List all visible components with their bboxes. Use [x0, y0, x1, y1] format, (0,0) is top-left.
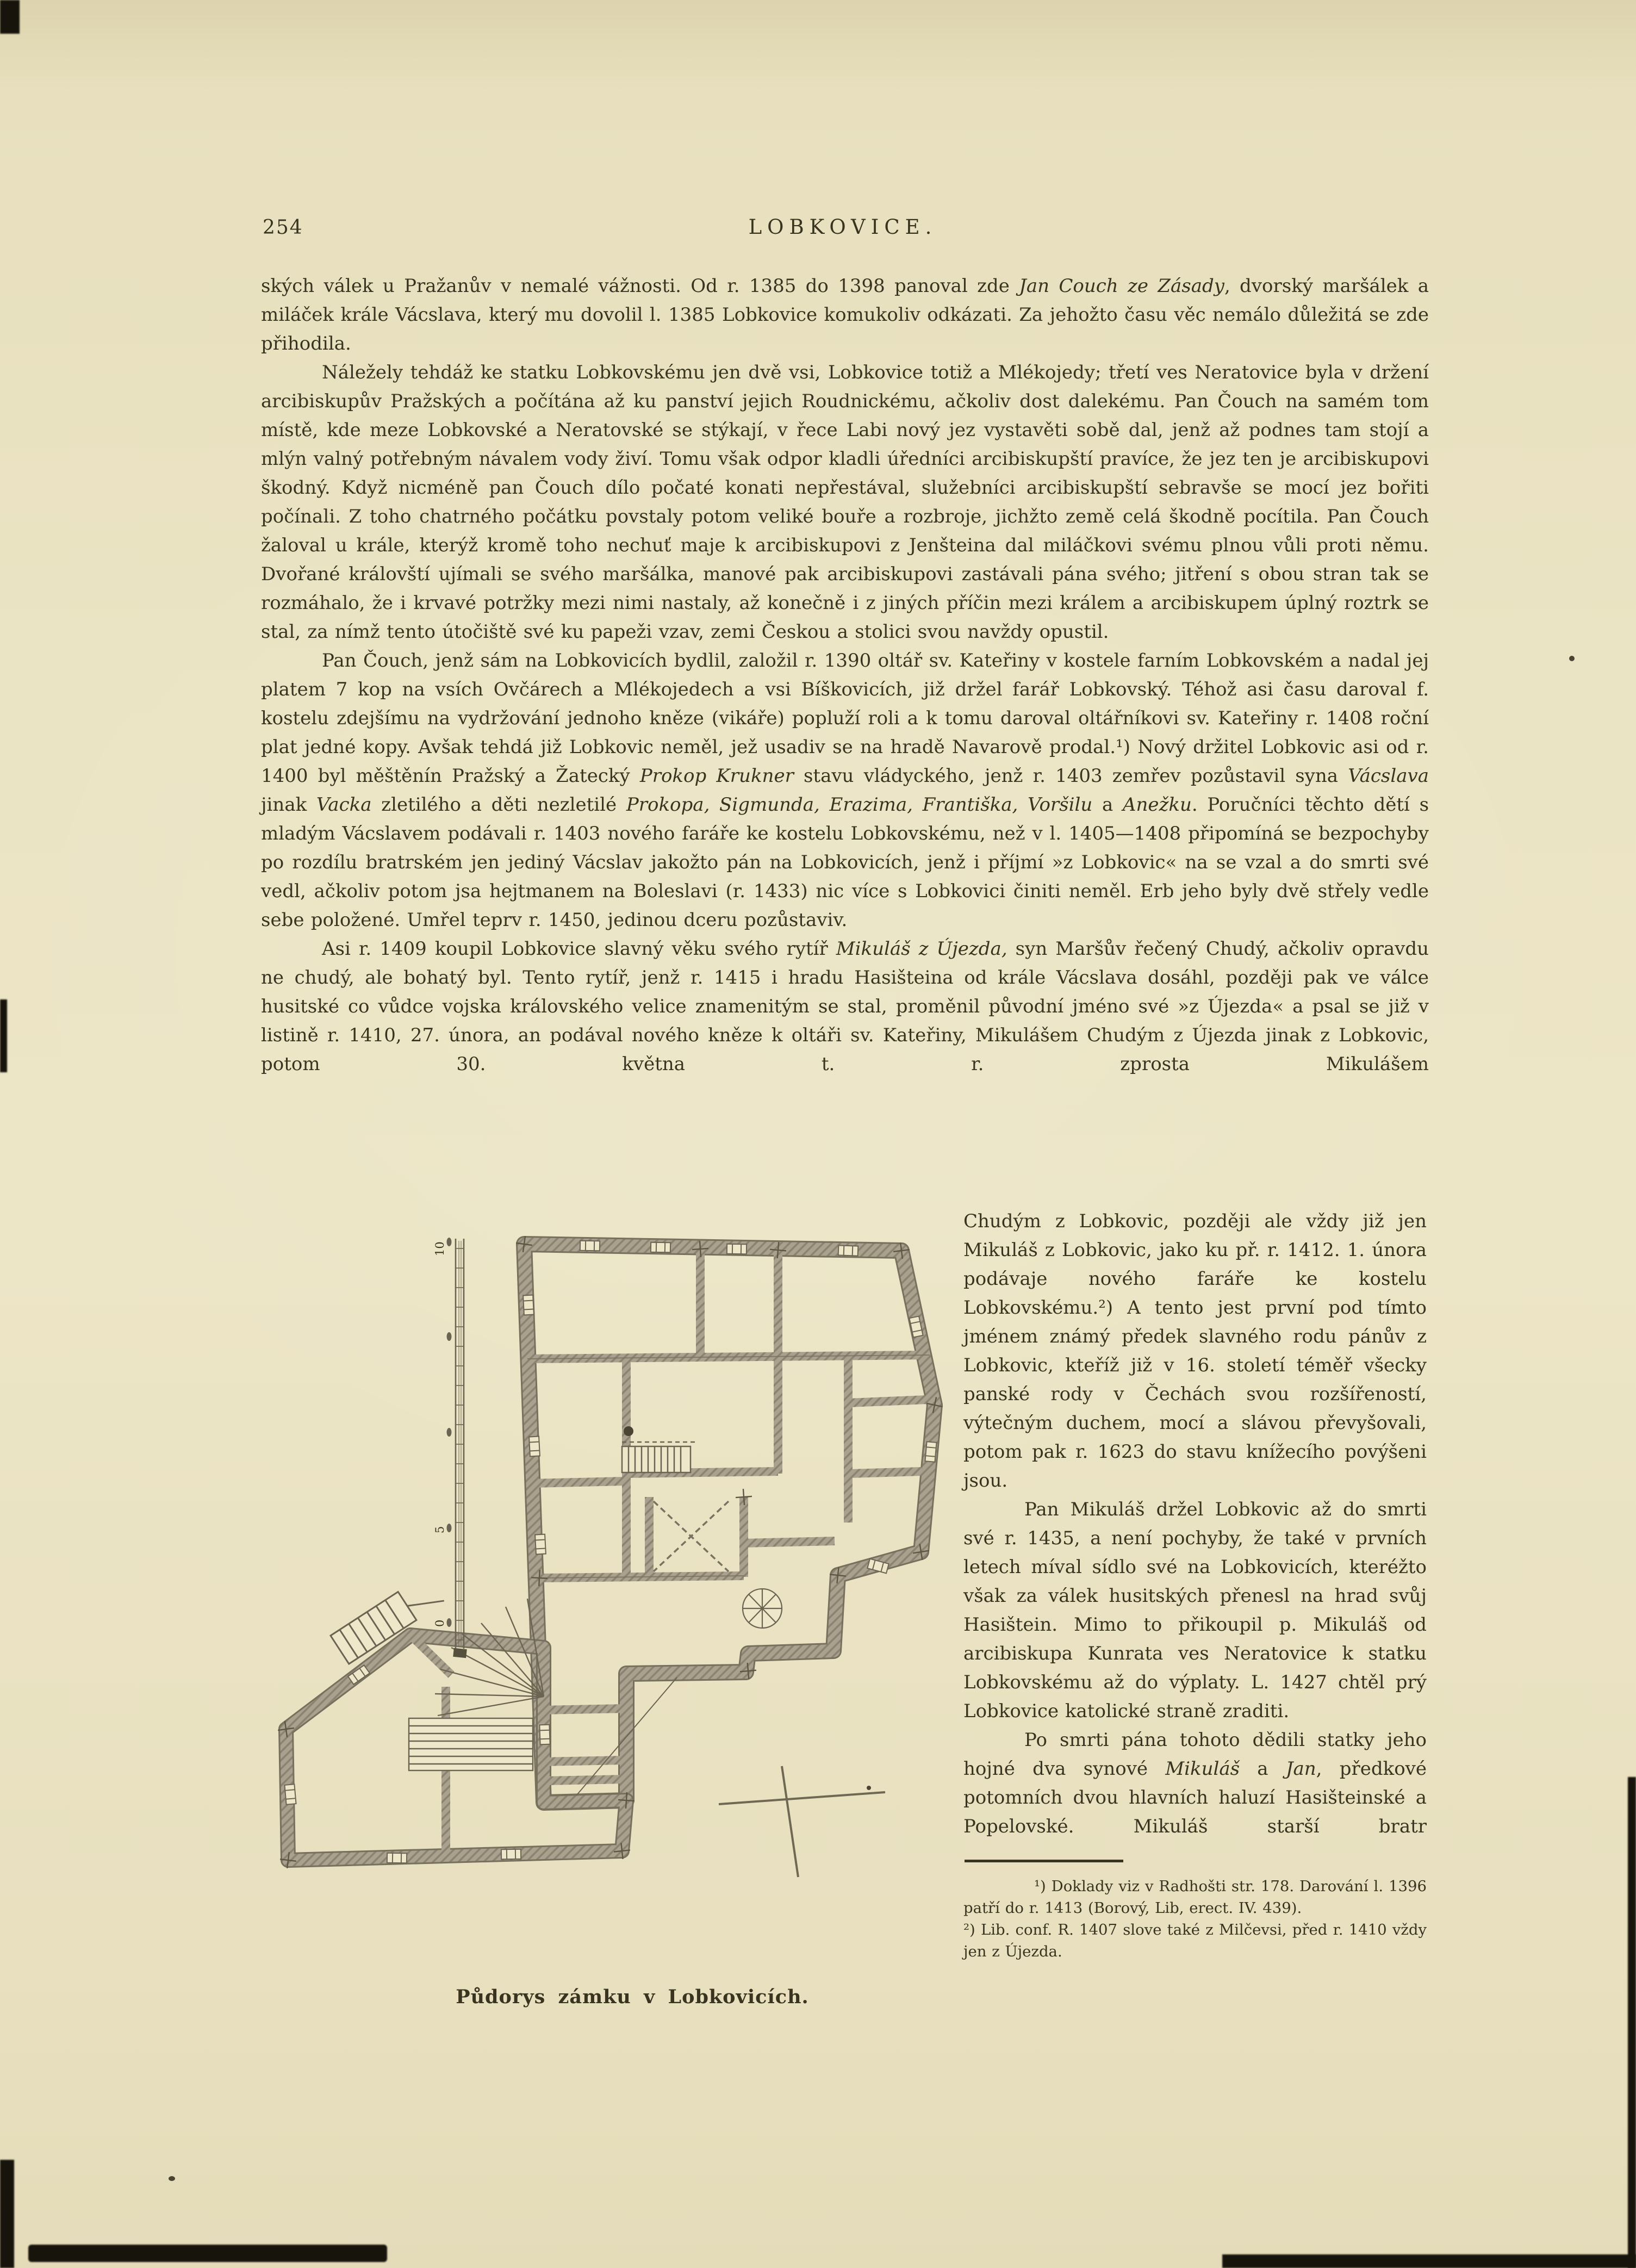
castle-floor-plan: 10 5 0	[272, 1218, 993, 1958]
footnotes-block: ¹) Doklady viz v Radhošti str. 178. Daro…	[963, 1875, 1427, 1962]
paragraph: Chudým z Lobkovic, později ale vždy již …	[963, 1207, 1427, 1495]
scan-artifact-bottom-right-bar	[1222, 2254, 1636, 2268]
paragraph: Pan Čouch, jenž sám na Lobkovicích bydli…	[261, 647, 1429, 935]
paragraph: ských válek u Pražanův v nemalé vážnosti…	[261, 272, 1429, 358]
hall-staircase	[622, 1442, 697, 1472]
floor-plan-figure: 10 5 0	[272, 1218, 993, 1958]
scan-artifact-top-left	[0, 0, 20, 34]
ink-speck	[867, 1786, 871, 1790]
spiral-stair	[743, 1589, 782, 1628]
courtyard-x	[654, 1501, 729, 1571]
column-paragraphs: Chudým z Lobkovic, později ale vždy již …	[963, 1207, 1427, 1841]
paragraph: Po smrti pána tohoto dědili statky jeho …	[963, 1726, 1427, 1841]
figure-caption: Půdorys zámku v Lobkovicích.	[272, 1986, 993, 2008]
ink-speck	[169, 2176, 175, 2181]
page-title: LOBKOVICE.	[749, 215, 937, 239]
upper-block-walls	[524, 1244, 935, 1803]
paragraph: Náležely tehdáž ke statku Lobkovskému je…	[261, 358, 1429, 647]
book-page-scan: 254 LOBKOVICE. ských válek u Pražanův v …	[0, 0, 1636, 2268]
scan-artifact-right-edge	[1628, 1777, 1636, 2268]
scan-artifact-bottom-left-corner	[0, 2160, 14, 2268]
scale-label-5: 5	[433, 1526, 446, 1533]
scale-label-0: 0	[433, 1620, 446, 1627]
paragraph: Asi r. 1409 koupil Lobkovice slavný věku…	[261, 935, 1429, 1079]
fan-staircase	[435, 1599, 544, 1716]
ink-speck	[1569, 656, 1575, 661]
survey-cross	[719, 1766, 885, 1877]
scale-bar: 10 5 0	[433, 1238, 467, 1658]
scale-label-10: 10	[433, 1241, 446, 1256]
footnote-rule	[965, 1860, 1123, 1862]
scan-artifact-bottom-bar	[28, 2245, 387, 2262]
door-mark	[624, 1426, 633, 1436]
paragraph: Pan Mikuláš držel Lobkovic až do smrti s…	[963, 1495, 1427, 1726]
page-number: 254	[263, 216, 303, 239]
footnote: ¹) Doklady viz v Radhošti str. 178. Daro…	[963, 1875, 1427, 1919]
interior-wall-edges	[527, 1355, 930, 1578]
corner-ticks	[277, 1235, 944, 1869]
main-text-block: ských válek u Pražanův v nemalé vážnosti…	[261, 272, 1429, 1079]
footnote: ²) Lib. conf. R. 1407 slove také z Milče…	[963, 1919, 1427, 1962]
wrapped-text-column: Chudým z Lobkovic, později ale vždy již …	[963, 1207, 1427, 1962]
wing-straight-stair	[409, 1718, 533, 1770]
scan-artifact-left-edge	[0, 999, 7, 1072]
window-symbols	[284, 1241, 936, 1863]
